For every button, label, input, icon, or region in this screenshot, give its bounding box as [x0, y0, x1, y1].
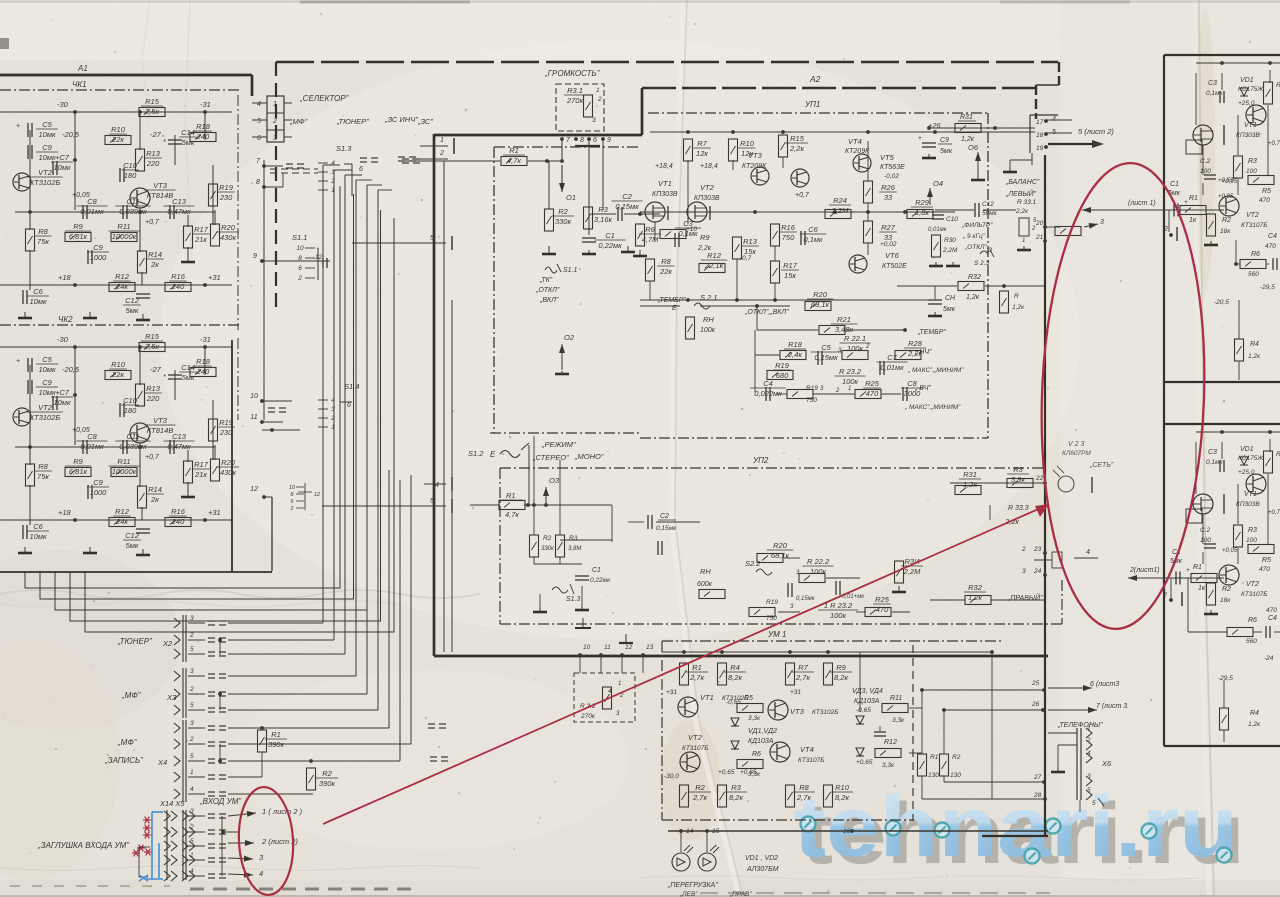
svg-text:3: 3 [592, 117, 596, 124]
svg-text:2: 2 [597, 96, 602, 103]
svg-text:R3: R3 [598, 205, 608, 214]
svg-text:R4: R4 [1250, 710, 1259, 717]
svg-text:R3: R3 [1248, 527, 1257, 534]
svg-text:3: 3 [1022, 568, 1026, 575]
svg-text:R7: R7 [697, 139, 707, 148]
svg-text:100к: 100к [842, 377, 859, 386]
svg-text:12: 12 [315, 254, 323, 261]
svg-text:4: 4 [259, 869, 263, 878]
svg-text:R18: R18 [196, 357, 211, 366]
svg-text:R10: R10 [740, 139, 755, 148]
svg-text:23: 23 [1033, 546, 1042, 553]
svg-text:5: 5 [190, 646, 194, 653]
svg-text:+0,7: +0,7 [145, 454, 160, 461]
svg-text:220: 220 [146, 159, 160, 168]
svg-text:0,1мк: 0,1мк [803, 235, 823, 244]
svg-text:1,2к: 1,2к [961, 136, 975, 143]
svg-text:С5: С5 [821, 343, 831, 352]
svg-text:4: 4 [257, 101, 261, 108]
svg-text:„ МАКС”,„МИНИМ”: „ МАКС”,„МИНИМ” [907, 367, 964, 374]
svg-text:4: 4 [331, 397, 335, 404]
svg-text:VТ2: VТ2 [688, 733, 703, 742]
svg-text:О2: О2 [564, 333, 575, 342]
svg-text:+0,05: +0,05 [1222, 548, 1238, 554]
svg-text:R12: R12 [707, 251, 722, 260]
svg-text:КП303В: КП303В [1236, 501, 1260, 508]
svg-text:КП303В: КП303В [694, 195, 720, 202]
svg-text:5мк: 5мк [182, 373, 195, 382]
svg-text:2,7к: 2,7к [795, 673, 810, 682]
svg-text:„РЕЖИМ”: „РЕЖИМ” [541, 440, 576, 449]
svg-text:VТ3: VТ3 [748, 151, 763, 160]
svg-text:100: 100 [1200, 168, 1211, 175]
svg-text:75к: 75к [37, 472, 49, 481]
svg-text:560: 560 [1246, 638, 1257, 645]
svg-text:„МОНО”: „МОНО” [574, 452, 604, 461]
svg-text:С6: С6 [33, 287, 43, 296]
svg-text:УП2: УП2 [752, 456, 769, 465]
svg-text:R11: R11 [117, 457, 130, 466]
svg-text:R26: R26 [881, 183, 896, 192]
svg-text:10мк: 10мк [38, 153, 55, 162]
svg-text:230: 230 [219, 428, 233, 437]
svg-text:1: 1 [190, 769, 194, 776]
svg-text:100к: 100к [700, 327, 716, 334]
svg-text:2,2к: 2,2к [789, 144, 804, 153]
svg-text:R13: R13 [743, 237, 758, 246]
svg-text:R10: R10 [835, 783, 850, 792]
svg-text:R15: R15 [145, 97, 160, 106]
svg-text:VD1: VD1 [1240, 77, 1254, 84]
svg-text:+С7: +С7 [55, 153, 70, 162]
svg-text:„ФИЛЬТР”: „ФИЛЬТР” [961, 222, 993, 229]
svg-text:С5: С5 [42, 355, 52, 364]
svg-text:-0,65: -0,65 [856, 707, 871, 714]
svg-text:100к: 100к [830, 611, 847, 620]
svg-text:С2: С2 [660, 513, 669, 520]
svg-text:R1: R1 [506, 491, 516, 500]
svg-text:0,47мк: 0,47мк [167, 207, 191, 216]
svg-text:2,4к: 2,4к [787, 350, 802, 359]
svg-text:1,2к: 1,2к [1012, 304, 1025, 311]
svg-text:22к: 22к [659, 267, 672, 276]
svg-text:R24: R24 [833, 196, 847, 205]
svg-text:КТ3107Б: КТ3107Б [1241, 222, 1268, 229]
svg-text:+31: +31 [208, 273, 221, 282]
svg-text:УМ 1: УМ 1 [767, 630, 786, 639]
svg-text:Х14 Х5: Х14 Х5 [159, 799, 185, 808]
svg-text:560: 560 [1248, 271, 1259, 278]
svg-text:R10: R10 [111, 125, 126, 134]
svg-text:Х4: Х4 [157, 758, 167, 767]
svg-text:R9: R9 [836, 663, 846, 672]
svg-text:V 2 3: V 2 3 [1068, 441, 1084, 448]
svg-text:R17: R17 [194, 460, 209, 469]
svg-text:RН: RН [703, 315, 714, 324]
svg-text:4,7к: 4,7к [507, 156, 521, 165]
svg-text:R6: R6 [645, 225, 655, 234]
svg-text:„ПРАВЫЙ”: „ПРАВЫЙ” [1007, 593, 1043, 602]
svg-text:9: 9 [253, 253, 257, 260]
svg-text:КП303В: КП303В [652, 191, 678, 198]
svg-text:R29: R29 [915, 198, 930, 207]
svg-text:5мк: 5мк [126, 306, 139, 315]
svg-text:6: 6 [298, 265, 302, 272]
svg-text:22,1к: 22,1к [704, 261, 724, 270]
svg-text:„ТЕМБР”: „ТЕМБР” [917, 329, 946, 336]
svg-text:R1: R1 [271, 730, 281, 739]
svg-text:С10: С10 [123, 396, 138, 405]
svg-text:R: R [1276, 451, 1280, 458]
svg-text:2: 2 [189, 824, 194, 831]
svg-text:5: 5 [430, 498, 434, 505]
svg-text:R32: R32 [968, 583, 983, 592]
svg-text:R18: R18 [196, 122, 211, 131]
svg-text:+31: +31 [790, 689, 801, 696]
svg-text:КТ814В: КТ814В [147, 426, 174, 435]
svg-text:470: 470 [1266, 607, 1277, 614]
svg-text:750: 750 [782, 233, 795, 242]
svg-text:R: R [1014, 293, 1019, 300]
svg-text:R2: R2 [1222, 217, 1231, 224]
svg-text:R8: R8 [799, 783, 809, 792]
svg-text:„МФ”: „МФ” [289, 117, 308, 126]
svg-text:АЛ307БМ: АЛ307БМ [746, 866, 779, 873]
svg-text:R6: R6 [752, 751, 761, 758]
svg-text:VД3, VД4: VД3, VД4 [852, 688, 883, 695]
svg-text:0,15мк: 0,15мк [814, 353, 838, 362]
svg-text:10: 10 [289, 485, 296, 491]
svg-text:R8: R8 [661, 257, 671, 266]
svg-text:„ГРОМКОСТЬ”: „ГРОМКОСТЬ” [544, 69, 600, 78]
svg-text:R5: R5 [1262, 188, 1271, 195]
svg-text:1: 1 [331, 424, 335, 431]
svg-text:5мк: 5мк [943, 306, 956, 313]
svg-text:330к: 330к [555, 217, 572, 226]
svg-text:22к: 22к [111, 135, 124, 144]
svg-text:10: 10 [296, 245, 304, 252]
svg-text:С7: С7 [887, 353, 897, 362]
svg-text:0,15мк: 0,15мк [656, 525, 677, 532]
svg-text:„ЛЕВЫЙ”: „ЛЕВЫЙ” [1005, 189, 1037, 198]
svg-text:„СЕТЬ”: „СЕТЬ” [1089, 462, 1114, 469]
svg-text:R1: R1 [692, 663, 702, 672]
svg-text:О3: О3 [549, 476, 560, 485]
svg-text:3: 3 [331, 406, 335, 413]
svg-text:R20: R20 [813, 290, 828, 299]
svg-text:1: 1 [848, 386, 851, 392]
svg-text:3,3к: 3,3к [748, 715, 761, 722]
svg-text:10: 10 [583, 644, 591, 651]
svg-text:3: 3 [1087, 773, 1091, 780]
svg-text:R20: R20 [773, 541, 788, 550]
svg-text:240: 240 [196, 367, 210, 376]
svg-text:R15: R15 [790, 134, 805, 143]
svg-text:+18,4: +18,4 [655, 163, 673, 170]
svg-text:R30: R30 [944, 237, 956, 244]
svg-text:-20,5: -20,5 [1214, 299, 1229, 306]
svg-text:430к: 430к [220, 233, 237, 242]
svg-text:VТ2: VТ2 [1246, 212, 1259, 219]
svg-text:1: 1 [331, 187, 335, 194]
svg-text:2,5к: 2,5к [144, 342, 159, 351]
svg-text:+0,7: +0,7 [795, 192, 810, 199]
svg-text:270к: 270к [580, 713, 596, 720]
svg-text:„ВКЛ”: „ВКЛ” [539, 297, 559, 304]
svg-text:R32: R32 [968, 274, 981, 281]
svg-text:2: 2 [272, 118, 277, 125]
svg-text:+0,65: +0,65 [718, 769, 735, 776]
svg-text:1,2к: 1,2к [1248, 353, 1261, 360]
svg-text:„ПРАВ”: „ПРАВ” [729, 891, 752, 897]
svg-text:-27: -27 [150, 365, 162, 374]
svg-text:R2: R2 [543, 535, 552, 542]
svg-text:750: 750 [766, 615, 777, 622]
svg-text:+: + [1184, 199, 1188, 206]
svg-text:„ТЮНЕР”: „ТЮНЕР” [336, 117, 369, 126]
svg-text:230: 230 [219, 193, 233, 202]
svg-text:100к: 100к [847, 344, 864, 353]
svg-text:С9: С9 [940, 137, 949, 144]
svg-text:R 33.1: R 33.1 [1017, 199, 1037, 206]
svg-text:5 (лист 2): 5 (лист 2) [1078, 127, 1114, 136]
svg-text:2,2М: 2,2М [831, 206, 849, 215]
svg-text:R25: R25 [865, 379, 880, 388]
svg-text:КП303В: КП303В [1236, 132, 1260, 139]
svg-text:КТ3107Б: КТ3107Б [682, 745, 709, 752]
svg-text:„ПЕРЕГРУЗКА”: „ПЕРЕГРУЗКА” [667, 882, 718, 889]
svg-text:0,01мк: 0,01мк [80, 442, 104, 451]
svg-text:2: 2 [865, 344, 870, 350]
svg-text:5: 5 [1092, 800, 1096, 807]
svg-text:R9: R9 [700, 233, 710, 242]
svg-text:С11: С11 [126, 197, 139, 206]
svg-text:R: R [1276, 82, 1280, 89]
svg-text:R14: R14 [148, 485, 162, 494]
svg-text:10мк: 10мк [38, 130, 55, 139]
svg-text:„ЗС”: „ЗС” [417, 117, 433, 126]
svg-text:R 33.3: R 33.3 [1008, 505, 1029, 512]
svg-text:0,47мк: 0,47мк [167, 442, 191, 451]
svg-text:220: 220 [146, 394, 160, 403]
svg-text:С8: С8 [87, 197, 97, 206]
svg-text:А1: А1 [77, 64, 88, 73]
svg-text:R16: R16 [171, 507, 186, 516]
svg-text:S2.2: S2.2 [745, 559, 761, 568]
svg-text:КС175Ж: КС175Ж [1238, 86, 1264, 93]
svg-text:СН: СН [945, 295, 956, 302]
svg-text:33: 33 [884, 193, 893, 202]
svg-text:2(лист1): 2(лист1) [1129, 567, 1160, 574]
svg-text:3: 3 [190, 720, 194, 727]
svg-text:240: 240 [171, 517, 185, 526]
svg-text:8,2к: 8,2к [835, 793, 849, 802]
svg-text:5: 5 [190, 838, 194, 845]
svg-text:5: 5 [190, 702, 194, 709]
svg-text:+0,05: +0,05 [1218, 194, 1234, 200]
svg-text:+С7: +С7 [55, 388, 70, 397]
svg-text:R2: R2 [558, 207, 568, 216]
svg-text:+0,55: +0,55 [1218, 178, 1234, 184]
svg-text:10мк: 10мк [29, 532, 46, 541]
svg-text:8,2к: 8,2к [728, 673, 742, 682]
svg-text:4: 4 [190, 868, 194, 875]
svg-text:VТ2: VТ2 [1246, 581, 1259, 588]
svg-text:R7: R7 [798, 663, 808, 672]
svg-text:8: 8 [298, 255, 302, 262]
svg-text:6 (лист3: 6 (лист3 [1090, 681, 1119, 688]
svg-text:5мк: 5мк [182, 138, 195, 147]
svg-text:R21: R21 [837, 315, 851, 324]
svg-text:R6: R6 [1248, 617, 1257, 624]
svg-text:0,039мк: 0,039мк [119, 442, 147, 451]
svg-text:R17: R17 [783, 261, 798, 270]
svg-text:С10: С10 [123, 161, 138, 170]
svg-text:С6: С6 [33, 522, 43, 531]
svg-text:S1.3: S1.3 [566, 596, 581, 603]
svg-text:S 2.1: S 2.1 [700, 293, 718, 302]
svg-text:470: 470 [1259, 566, 1270, 573]
svg-text:21: 21 [1035, 234, 1044, 241]
svg-text:R16: R16 [171, 272, 186, 281]
svg-text:1000: 1000 [90, 253, 108, 262]
svg-text:22к: 22к [111, 370, 124, 379]
svg-text:КТ3107Б: КТ3107Б [798, 757, 825, 764]
svg-text:3,3к: 3,3к [892, 717, 905, 724]
svg-text:VТ1: VТ1 [1244, 122, 1257, 129]
svg-text:„ТЕЛЕФОНЫ”: „ТЕЛЕФОНЫ” [1057, 722, 1103, 729]
svg-text:С2: С2 [622, 192, 632, 201]
svg-text:*: * [163, 139, 166, 146]
svg-text:8: 8 [580, 137, 584, 144]
svg-text:З: З [988, 247, 992, 254]
svg-text:КТ209К: КТ209К [845, 148, 870, 155]
svg-text:-0,7: -0,7 [740, 255, 752, 262]
svg-text:1: 1 [618, 681, 621, 687]
svg-text:„СТЕРЕО”: „СТЕРЕО” [532, 453, 569, 462]
svg-text:R13: R13 [146, 384, 161, 393]
svg-text:1,2к: 1,2к [966, 294, 980, 301]
svg-text:R1: R1 [930, 754, 939, 761]
svg-text:17: 17 [1036, 119, 1044, 126]
svg-text:100: 100 [1246, 168, 1257, 175]
svg-text:„ЛЕВ”: „ЛЕВ” [679, 891, 698, 897]
svg-text:С9: С9 [93, 478, 103, 487]
svg-text:R25: R25 [875, 595, 890, 604]
svg-text:+0,75: +0,75 [1268, 141, 1280, 147]
svg-text:VД1,VД2: VД1,VД2 [748, 728, 777, 735]
svg-text:+31: +31 [666, 689, 677, 696]
svg-text:-20,5: -20,5 [62, 130, 80, 139]
svg-text:S1.1: S1.1 [292, 233, 307, 242]
svg-text:0,22мк: 0,22мк [598, 241, 622, 250]
svg-text:68,1к: 68,1к [771, 551, 790, 560]
svg-text:18: 18 [1036, 132, 1044, 139]
svg-text:„ НЧ”: „ НЧ” [914, 349, 932, 356]
svg-text:С.2: С.2 [1200, 527, 1211, 534]
svg-text:19: 19 [1036, 145, 1044, 152]
svg-text:12: 12 [250, 486, 258, 493]
svg-text:10мк: 10мк [38, 365, 55, 374]
svg-text:С10: С10 [946, 216, 958, 223]
svg-text:16: 16 [843, 828, 851, 835]
svg-text:3,16к: 3,16к [594, 215, 613, 224]
svg-text:„ОТКЛ”,„ВКЛ”: „ОТКЛ”,„ВКЛ” [744, 309, 789, 316]
svg-text:7 (лист 3.: 7 (лист 3. [1096, 703, 1129, 710]
svg-text:+: + [16, 358, 20, 365]
svg-text:4: 4 [435, 482, 439, 489]
svg-text:100к: 100к [810, 567, 827, 576]
svg-text:С12: С12 [125, 296, 140, 305]
svg-text:S1.1: S1.1 [563, 267, 578, 274]
svg-text:2: 2 [189, 632, 194, 639]
svg-text:R16: R16 [781, 223, 796, 232]
svg-text:„ЗС ИНЧ”: „ЗС ИНЧ” [384, 115, 418, 124]
svg-text:6: 6 [347, 402, 351, 409]
svg-text:R19: R19 [766, 599, 778, 606]
svg-text:1,2к: 1,2к [963, 480, 977, 489]
svg-text:R2: R2 [695, 783, 705, 792]
svg-text:R14: R14 [148, 250, 162, 259]
svg-text:6: 6 [593, 137, 597, 144]
svg-text:600к: 600к [697, 581, 713, 588]
svg-text:10: 10 [250, 393, 258, 400]
svg-text:-0,02: -0,02 [884, 173, 899, 180]
svg-text:390к: 390к [319, 779, 336, 788]
svg-text:13: 13 [646, 644, 654, 651]
svg-text:3,8М: 3,8М [568, 546, 581, 552]
svg-text:0,01мк: 0,01мк [80, 207, 104, 216]
svg-text:-30,0: -30,0 [664, 773, 679, 780]
svg-text:180: 180 [124, 406, 137, 415]
svg-text:-30: -30 [57, 100, 69, 109]
svg-text:26: 26 [1031, 701, 1040, 708]
svg-text:R2: R2 [1222, 586, 1231, 593]
svg-text:+: + [918, 135, 922, 142]
svg-text:2,2к: 2,2к [1015, 208, 1029, 215]
svg-text:+18: +18 [58, 273, 72, 282]
svg-text:КЛ607РМ: КЛ607РМ [1062, 450, 1091, 457]
svg-text:А2: А2 [809, 74, 821, 84]
svg-text:С.2: С.2 [1200, 158, 1211, 165]
svg-text:-29,5: -29,5 [1260, 284, 1275, 291]
svg-text:R11: R11 [117, 222, 130, 231]
svg-text:С1: С1 [592, 567, 601, 574]
svg-text:10000к: 10000к [112, 467, 137, 476]
svg-text:R13: R13 [146, 149, 161, 158]
svg-text:+: + [16, 123, 20, 130]
svg-text:5мк: 5мк [126, 541, 139, 550]
svg-text:Х6: Х6 [1101, 759, 1112, 768]
svg-text:68,1к: 68,1к [811, 300, 830, 309]
svg-text:R3.1: R3.1 [567, 86, 583, 95]
svg-text:R31: R31 [960, 114, 973, 121]
svg-text:2,7к: 2,7к [796, 793, 811, 802]
svg-text:2к: 2к [150, 495, 159, 504]
svg-text:22: 22 [1035, 475, 1044, 482]
svg-text:10000к: 10000к [112, 232, 137, 241]
svg-text:КТ502Е: КТ502Е [882, 263, 907, 270]
svg-text:24: 24 [1033, 568, 1042, 575]
svg-text:Х2: Х2 [162, 639, 173, 648]
svg-text:21к: 21к [194, 470, 207, 479]
svg-text:240: 240 [171, 282, 185, 291]
svg-text:R3: R3 [731, 783, 741, 792]
svg-text:12: 12 [625, 644, 633, 651]
svg-text:10мк: 10мк [53, 398, 70, 407]
svg-text:+31: +31 [208, 508, 221, 517]
svg-text:С5: С5 [42, 120, 52, 129]
